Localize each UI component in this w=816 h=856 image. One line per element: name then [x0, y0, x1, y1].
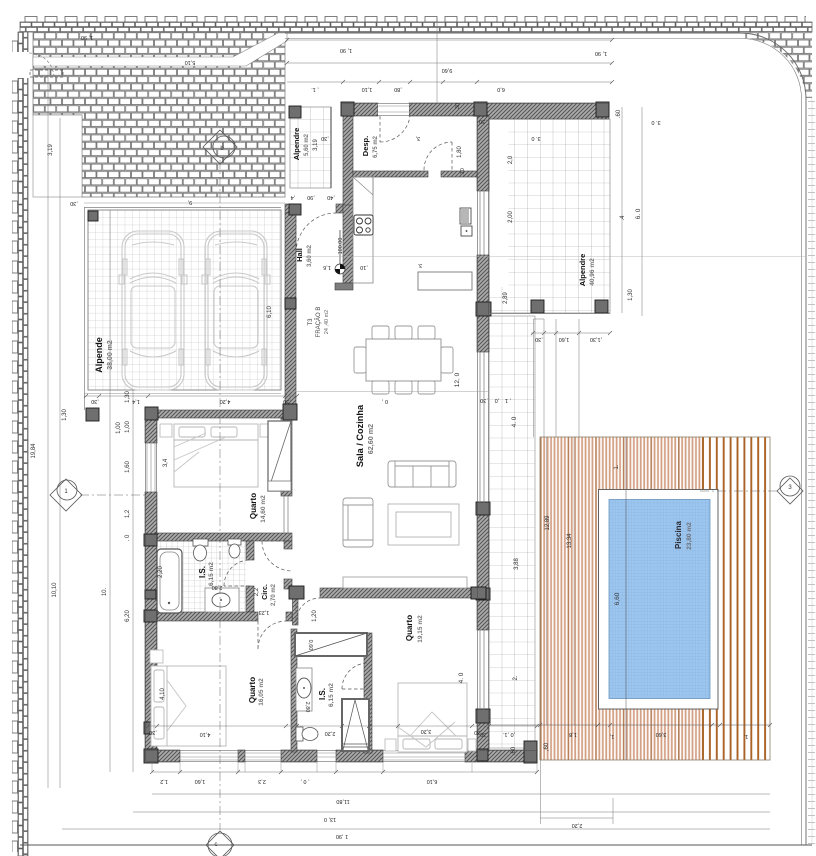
svg-text:,80: ,80	[394, 86, 402, 92]
svg-text:1, 90: 1, 90	[81, 34, 93, 40]
svg-text:23,80 m2: 23,80 m2	[686, 522, 693, 550]
svg-text:40,96 m2: 40,96 m2	[589, 258, 596, 286]
svg-text:4. 0: 4. 0	[458, 672, 465, 683]
svg-text:Quarto: Quarto	[405, 615, 414, 641]
svg-text:3. 0: 3. 0	[531, 135, 540, 141]
svg-text:,40: ,40	[327, 194, 335, 200]
svg-text:4,10: 4,10	[160, 688, 166, 700]
svg-text:,4: ,4	[291, 194, 296, 200]
svg-text:2.: 2.	[513, 675, 519, 680]
svg-text:, 1.: , 1.	[311, 86, 319, 92]
svg-text:0 ,: 0 ,	[381, 398, 388, 404]
svg-text:9,60: 9,60	[442, 67, 453, 73]
svg-text:c: c	[215, 842, 218, 848]
svg-text:1,6: 1,6	[323, 264, 331, 270]
svg-text:6,75 m2: 6,75 m2	[373, 135, 379, 158]
svg-text:1.: 1.	[614, 464, 620, 469]
svg-text:24 ,40 m2: 24 ,40 m2	[324, 310, 330, 334]
svg-text:Hall: Hall	[295, 248, 304, 262]
svg-text:.60: .60	[511, 746, 517, 755]
svg-text:4. 0: 4. 0	[511, 416, 518, 427]
svg-text:1,4: 1,4	[132, 398, 140, 404]
svg-text:30: 30	[455, 103, 461, 109]
svg-text:Alpendre: Alpendre	[292, 128, 301, 161]
svg-text:14,60 m2: 14,60 m2	[260, 495, 267, 523]
svg-text:62,60 m2: 62,60 m2	[366, 424, 375, 454]
svg-text:3,88: 3,88	[514, 558, 520, 570]
svg-text:Alpendre: Alpendre	[578, 254, 587, 287]
svg-text:,0: ,0	[495, 397, 500, 403]
svg-text:5,10: 5,10	[185, 59, 196, 65]
svg-text:2,20: 2,20	[158, 566, 164, 578]
svg-text:1,20: 1,20	[312, 610, 318, 622]
svg-text:,1,30: ,1,30	[590, 336, 602, 342]
svg-text:1,30: 1,30	[62, 409, 68, 421]
svg-text:1,: 1,	[609, 733, 614, 739]
svg-text:, 0 ,: , 0 ,	[300, 778, 310, 784]
svg-text:T3: T3	[308, 318, 314, 326]
svg-text:3,19: 3,19	[48, 144, 54, 156]
svg-text:, 1: , 1	[505, 397, 511, 403]
svg-text:I.S.: I.S.	[318, 688, 327, 700]
svg-text:2,2: 2,2	[254, 587, 260, 596]
svg-text:,60: ,60	[544, 742, 550, 751]
svg-text:3,60: 3,60	[656, 731, 667, 737]
svg-text:,30: ,30	[283, 398, 291, 404]
svg-text:,30: ,30	[321, 135, 329, 141]
svg-text:10.: 10.	[102, 587, 108, 596]
svg-text:12,89: 12,89	[545, 515, 551, 531]
svg-text:16,05 m2: 16,05 m2	[258, 678, 265, 706]
svg-text:Quarto: Quarto	[249, 493, 258, 519]
svg-text:19,84: 19,84	[31, 443, 37, 459]
svg-text:3.: 3.	[417, 262, 422, 268]
svg-text:1,2: 1,2	[160, 778, 168, 784]
svg-text:0,60: 0,60	[307, 640, 313, 651]
svg-text:6. 0: 6. 0	[635, 208, 642, 219]
svg-text:1,23: 1,23	[259, 609, 270, 615]
svg-text:2,20: 2,20	[325, 730, 336, 736]
svg-text:1,60: 1,60	[559, 336, 570, 342]
svg-text:,30: ,30	[480, 397, 488, 403]
svg-text:. 0: . 0	[125, 534, 131, 541]
svg-text:Piscina: Piscina	[674, 520, 683, 549]
svg-text:19,15 m2: 19,15 m2	[417, 615, 424, 643]
svg-text:.4: .4	[620, 215, 626, 221]
svg-text:Circ.: Circ.	[262, 584, 269, 600]
svg-text:12, 0: 12, 0	[454, 372, 461, 387]
svg-text:.60: .60	[616, 109, 622, 118]
svg-text:1,00: 1,00	[125, 421, 131, 433]
svg-text:,30: ,30	[70, 200, 78, 206]
svg-text:2,70 m2: 2,70 m2	[271, 583, 277, 606]
svg-text:Desp.: Desp.	[361, 136, 370, 156]
svg-text:3,4: 3,4	[163, 458, 169, 467]
svg-text:1,30: 1,30	[628, 289, 634, 301]
svg-text:11,80: 11,80	[336, 798, 349, 804]
svg-text:2,0: 2,0	[508, 155, 514, 164]
svg-text:,30: ,30	[149, 729, 157, 735]
svg-text:6,10: 6,10	[267, 306, 273, 318]
svg-text:3,: 3,	[415, 135, 420, 141]
svg-text:3,60 m2: 3,60 m2	[307, 244, 313, 267]
svg-text:1,8: 1,8	[569, 731, 577, 737]
svg-text:5,60 m2: 5,60 m2	[304, 133, 310, 156]
svg-text:2,80: 2,80	[212, 584, 223, 590]
svg-text:13, 0: 13, 0	[324, 816, 336, 822]
svg-text:6,20: 6,20	[125, 610, 131, 622]
svg-text:4,10: 4,10	[200, 731, 211, 737]
svg-text:13,34: 13,34	[567, 533, 573, 549]
svg-text:,30: ,30	[535, 336, 543, 342]
svg-text:1.: 1.	[743, 733, 748, 739]
svg-text:6,0: 6,0	[497, 86, 505, 92]
svg-text:1, 90: 1, 90	[340, 47, 352, 53]
svg-text:9,: 9,	[187, 199, 192, 205]
svg-text:3,20: 3,20	[421, 728, 432, 734]
svg-text:,0 ,1.: ,0 ,1.	[502, 731, 515, 737]
svg-text:6,10: 6,10	[427, 778, 438, 784]
svg-text:6,15 m2: 6,15 m2	[208, 562, 215, 586]
svg-text:2,3: 2,3	[258, 778, 266, 784]
svg-text:1,10: 1,10	[362, 86, 373, 92]
svg-text:4,20: 4,20	[220, 398, 231, 404]
svg-text:6,15 m2: 6,15 m2	[328, 683, 335, 707]
svg-text:2,20: 2,20	[572, 822, 583, 828]
svg-text:I.S.: I.S.	[198, 566, 207, 578]
svg-text:3. 0: 3. 0	[651, 119, 660, 125]
svg-text:2,00: 2,00	[508, 211, 514, 223]
svg-text:1,60: 1,60	[195, 778, 206, 784]
svg-text:2,80: 2,80	[304, 702, 310, 713]
svg-text:,90: ,90	[307, 194, 315, 200]
svg-text:1,2: 1,2	[125, 509, 131, 518]
svg-text:,30: ,30	[479, 118, 487, 124]
svg-text:Alpende: Alpende	[94, 337, 104, 373]
svg-text:1, 90: 1, 90	[595, 50, 607, 56]
svg-text:38,00 m2: 38,00 m2	[107, 340, 114, 370]
svg-text:,30: ,30	[91, 398, 99, 404]
svg-text:Sala / Cozinha: Sala / Cozinha	[355, 404, 365, 467]
svg-text:Quarto: Quarto	[248, 677, 257, 703]
svg-text:10,10: 10,10	[52, 582, 58, 598]
svg-text:1,30: 1,30	[125, 391, 131, 403]
svg-text:1 ,90: 1 ,90	[336, 833, 348, 839]
svg-text:6,60: 6,60	[614, 592, 621, 605]
svg-text:100.00: 100.00	[338, 238, 344, 255]
svg-text:1,60: 1,60	[125, 461, 131, 473]
svg-text:,30: ,30	[474, 729, 482, 735]
svg-text:2,89: 2,89	[503, 292, 509, 304]
svg-text:,10: ,10	[360, 264, 368, 270]
svg-text:FRAÇÃO B: FRAÇÃO B	[315, 307, 322, 338]
svg-text:1,80: 1,80	[457, 146, 463, 158]
svg-text:1,00: 1,00	[116, 422, 122, 434]
svg-text:3,19: 3,19	[313, 139, 319, 151]
svg-text:,10: ,10	[460, 168, 466, 176]
